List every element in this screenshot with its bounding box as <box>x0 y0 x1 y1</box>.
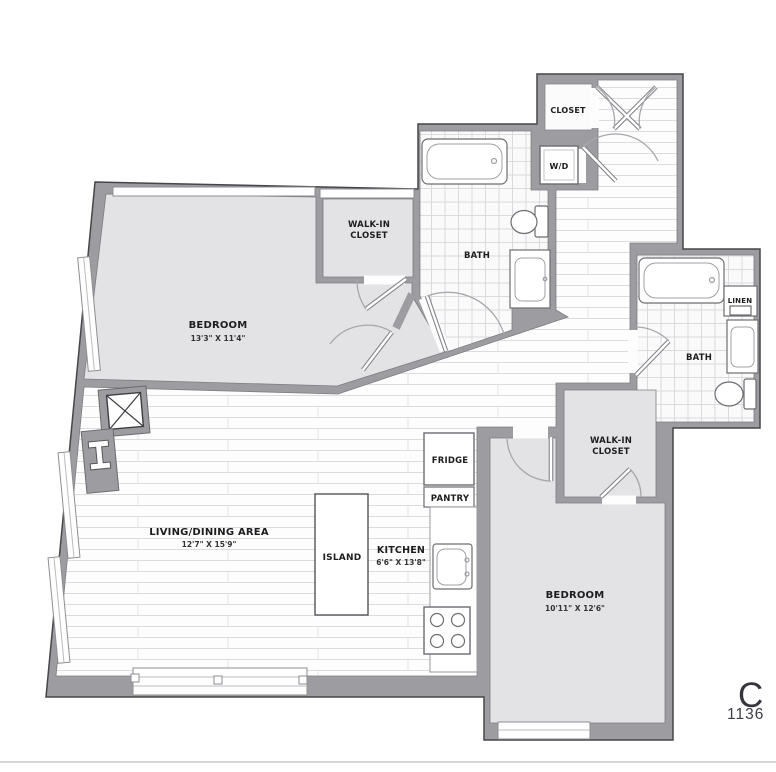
kitchen-label: KITCHEN <box>377 545 425 556</box>
bedroom-2-dims: 10'11" X 12'6" <box>545 604 605 613</box>
island-label: ISLAND <box>323 553 362 563</box>
floorplan-svg: BEDROOM 13'3" X 11'4" WALK-IN CLOSET BAT… <box>0 0 776 768</box>
bathtub-1 <box>422 139 507 184</box>
bathtub-2 <box>639 258 724 303</box>
column-icon <box>81 429 119 494</box>
window-top-2 <box>320 189 414 198</box>
toilet-1-bowl <box>511 211 537 234</box>
living-dims: 12'7" X 15'9" <box>182 540 237 549</box>
bath-2-label: BATH <box>686 353 712 363</box>
wd-label: W/D <box>550 162 569 171</box>
toilet-2-bowl <box>715 382 743 406</box>
walkin-closet-1-label-1: WALK-IN <box>348 220 390 230</box>
bath-1-label: BATH <box>464 251 490 261</box>
linen-shelf <box>730 306 751 315</box>
fridge-label: FRIDGE <box>432 456 469 466</box>
linen-label: LINEN <box>728 297 753 305</box>
sink-vanity-2 <box>727 320 758 373</box>
brand-subtitle-partial: 1136 <box>727 706 764 724</box>
bedroom-1-dims: 13'3" X 11'4" <box>191 334 246 343</box>
bedroom-1-label: BEDROOM <box>189 320 248 331</box>
sink-vanity-1 <box>510 250 550 308</box>
entry-closet-label: CLOSET <box>550 106 586 115</box>
bottom-divider <box>0 761 776 763</box>
walkin-closet-1-label-2: CLOSET <box>350 231 388 241</box>
pantry-label: PANTRY <box>431 494 470 504</box>
living-label: LIVING/DINING AREA <box>149 527 269 538</box>
walkin-closet-2-label-1: WALK-IN <box>590 436 632 446</box>
bedroom-2-label: BEDROOM <box>546 590 605 601</box>
walkin-closet-2-label-2: CLOSET <box>592 447 630 457</box>
toilet-2-tank <box>744 379 756 409</box>
kitchen-dims: 6'6" X 13'8" <box>376 558 426 567</box>
stove <box>424 607 470 654</box>
window-top-1 <box>113 187 315 196</box>
